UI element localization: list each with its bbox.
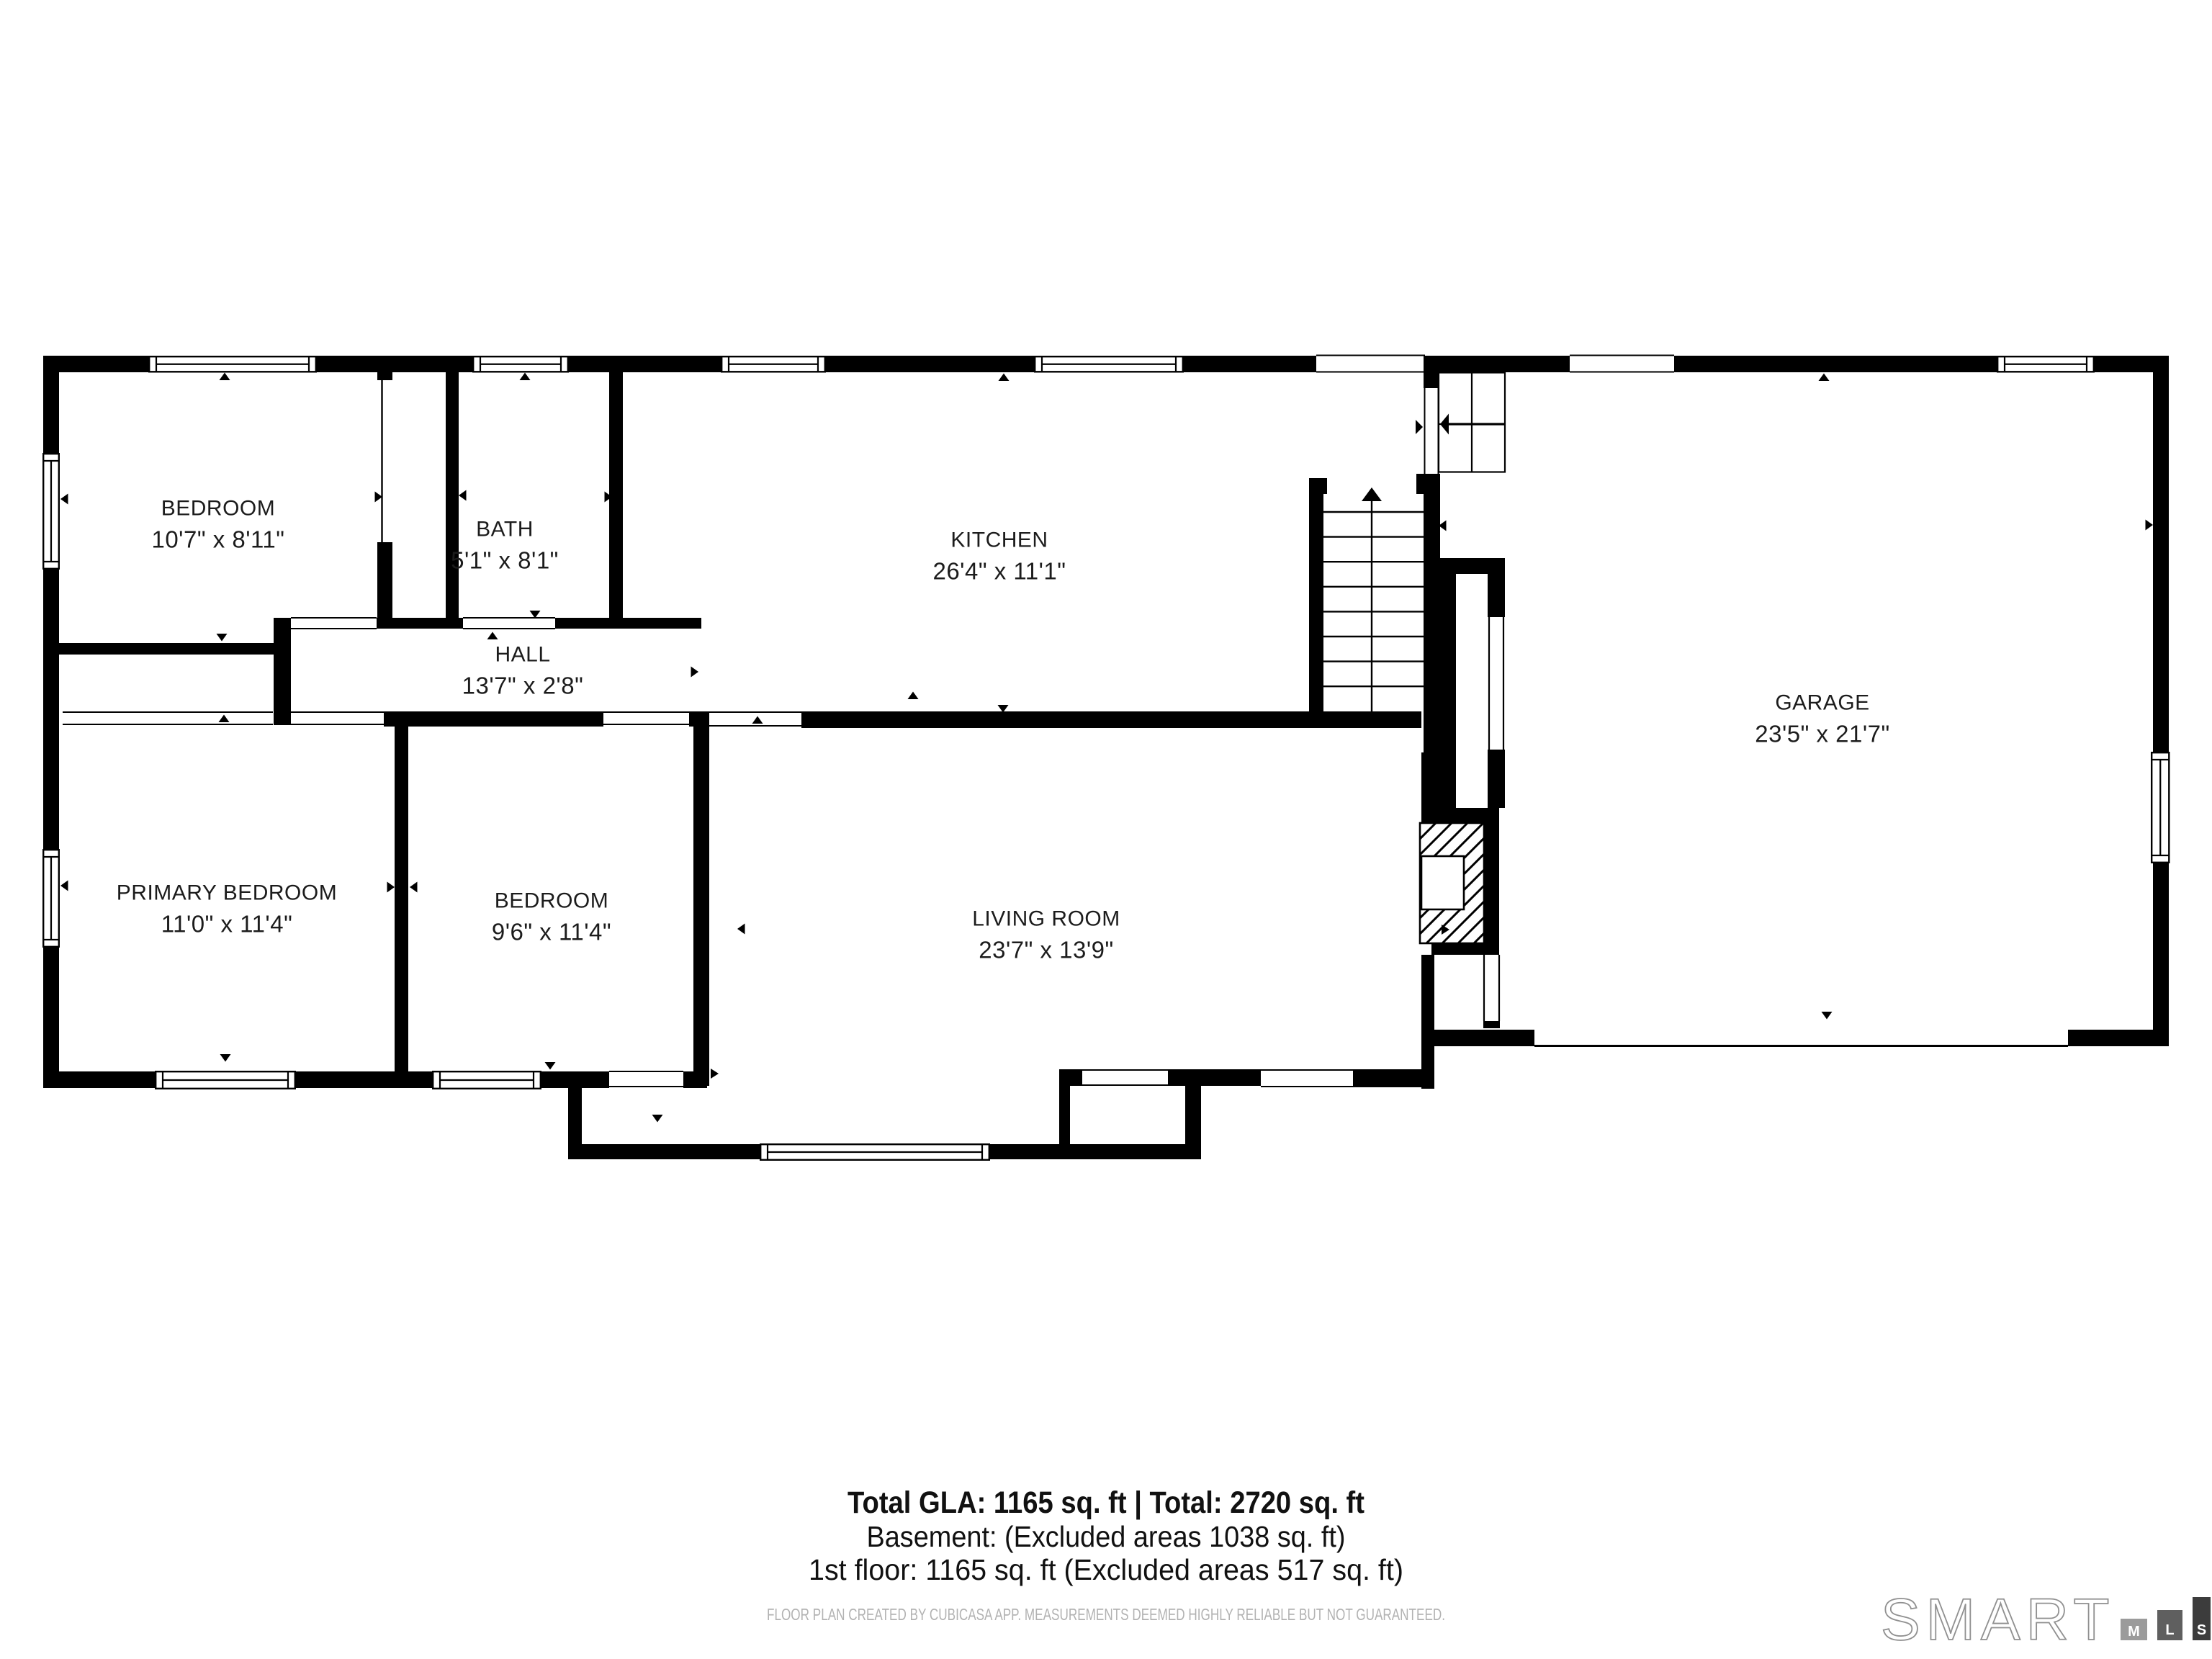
svg-text:23'7" x 13'9": 23'7" x 13'9" <box>979 937 1113 963</box>
svg-text:KITCHEN: KITCHEN <box>950 529 1048 552</box>
svg-text:13'7" x 2'8": 13'7" x 2'8" <box>462 673 584 699</box>
svg-text:Total GLA: 1165 sq. ft | Total: Total GLA: 1165 sq. ft | Total: 2720 sq.… <box>848 1485 1364 1520</box>
svg-text:M: M <box>2128 1624 2140 1640</box>
svg-text:PRIMARY BEDROOM: PRIMARY BEDROOM <box>117 881 337 905</box>
svg-text:GARAGE: GARAGE <box>1775 691 1869 715</box>
svg-text:9'6" x 11'4": 9'6" x 11'4" <box>492 919 611 945</box>
svg-text:BATH: BATH <box>476 518 534 541</box>
svg-text:FLOOR PLAN CREATED BY CUBICASA: FLOOR PLAN CREATED BY CUBICASA APP. MEAS… <box>767 1605 1445 1624</box>
svg-text:HALL: HALL <box>495 643 550 667</box>
svg-text:23'5" x 21'7": 23'5" x 21'7" <box>1755 721 1889 747</box>
svg-text:L: L <box>2165 1622 2174 1638</box>
svg-text:S: S <box>2197 1622 2206 1638</box>
svg-text:BEDROOM: BEDROOM <box>495 889 609 913</box>
svg-text:Basement: (Excluded areas 1038: Basement: (Excluded areas 1038 sq. ft) <box>867 1520 1346 1553</box>
svg-text:LIVING ROOM: LIVING ROOM <box>972 907 1120 931</box>
svg-text:11'0" x 11'4": 11'0" x 11'4" <box>161 911 293 938</box>
svg-text:BEDROOM: BEDROOM <box>161 497 276 521</box>
svg-text:26'4" x 11'1": 26'4" x 11'1" <box>932 558 1066 585</box>
svg-text:5'1" x 8'1": 5'1" x 8'1" <box>451 547 559 574</box>
svg-text:1st floor: 1165 sq. ft (Exclud: 1st floor: 1165 sq. ft (Excluded areas 5… <box>809 1553 1403 1586</box>
svg-text:10'7" x 8'11": 10'7" x 8'11" <box>151 526 284 553</box>
svg-text:SMART: SMART <box>1881 1587 2116 1653</box>
